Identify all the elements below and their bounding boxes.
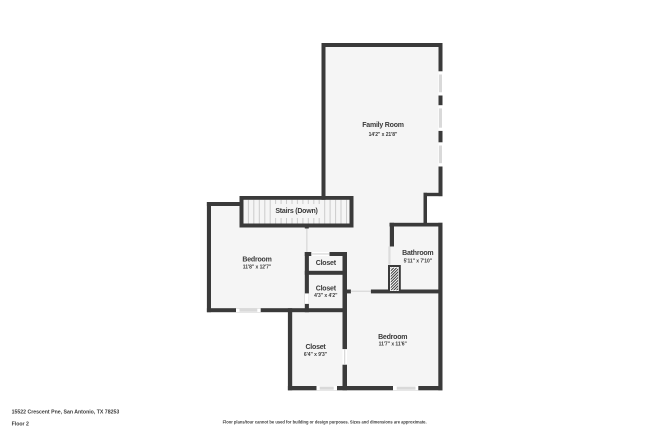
- svg-text:Closet: Closet: [316, 260, 337, 267]
- svg-text:Floor plans/tour cannot be use: Floor plans/tour cannot be used for buil…: [223, 419, 427, 424]
- svg-text:15522 Crescent Pne, San Antoni: 15522 Crescent Pne, San Antonio, TX 7825…: [12, 410, 120, 416]
- svg-text:Bedroom: Bedroom: [242, 257, 271, 264]
- svg-text:14'2" x 21'8": 14'2" x 21'8": [369, 132, 398, 138]
- svg-text:4'3" x 4'2": 4'3" x 4'2": [314, 293, 338, 299]
- svg-text:Closet: Closet: [316, 286, 337, 293]
- svg-text:6'4" x 9'3": 6'4" x 9'3": [304, 352, 328, 358]
- svg-text:5'11" x 7'10": 5'11" x 7'10": [404, 259, 433, 265]
- svg-text:Bathroom: Bathroom: [402, 250, 433, 257]
- svg-text:Bedroom: Bedroom: [378, 334, 407, 341]
- svg-text:Stairs (Down): Stairs (Down): [275, 208, 317, 215]
- svg-text:Closet: Closet: [305, 344, 326, 351]
- svg-text:Floor 2: Floor 2: [12, 422, 29, 428]
- svg-text:11'7" x 11'6": 11'7" x 11'6": [379, 341, 408, 347]
- svg-text:Family Room: Family Room: [362, 122, 404, 129]
- svg-text:11'8" x 12'7": 11'8" x 12'7": [243, 264, 272, 270]
